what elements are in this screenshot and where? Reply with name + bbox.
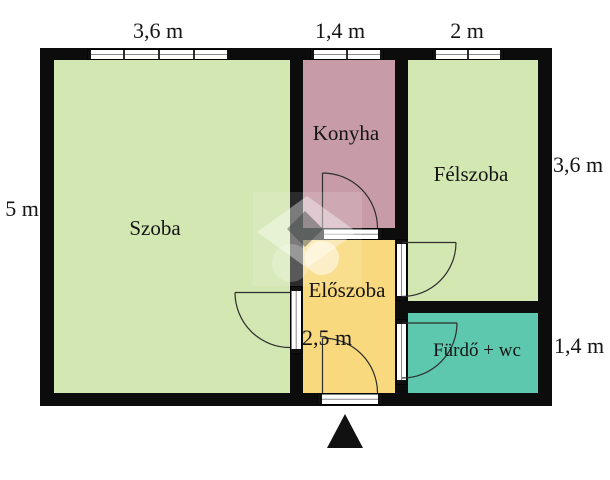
- dim-left: 5 m: [5, 196, 39, 221]
- dim-top-right: 2 m: [450, 18, 484, 43]
- dim-top-middle: 1,4 m: [315, 18, 365, 43]
- window-felszoba: [433, 50, 503, 60]
- label-szoba: Szoba: [129, 216, 181, 240]
- dim-top-left: 3,6 m: [133, 18, 183, 43]
- dim-right-lower: 1,4 m: [554, 333, 604, 358]
- floor-plan-canvas: Szoba Konyha Félszoba Előszoba Fürdő + w…: [0, 0, 610, 480]
- label-konyha: Konyha: [313, 121, 380, 145]
- window-szoba: [88, 50, 230, 60]
- label-eloszoba: Előszoba: [309, 278, 387, 302]
- label-felszoba: Félszoba: [434, 162, 509, 186]
- window-konyha: [311, 50, 383, 60]
- dim-right-upper: 3,6 m: [553, 152, 603, 177]
- dim-eloszoba-width: 2,5 m: [302, 325, 352, 350]
- watermark-logo-icon: [253, 192, 362, 286]
- label-furdo: Fürdő + wc: [433, 340, 521, 361]
- floor-plan-svg: Szoba Konyha Félszoba Előszoba Fürdő + w…: [0, 0, 610, 480]
